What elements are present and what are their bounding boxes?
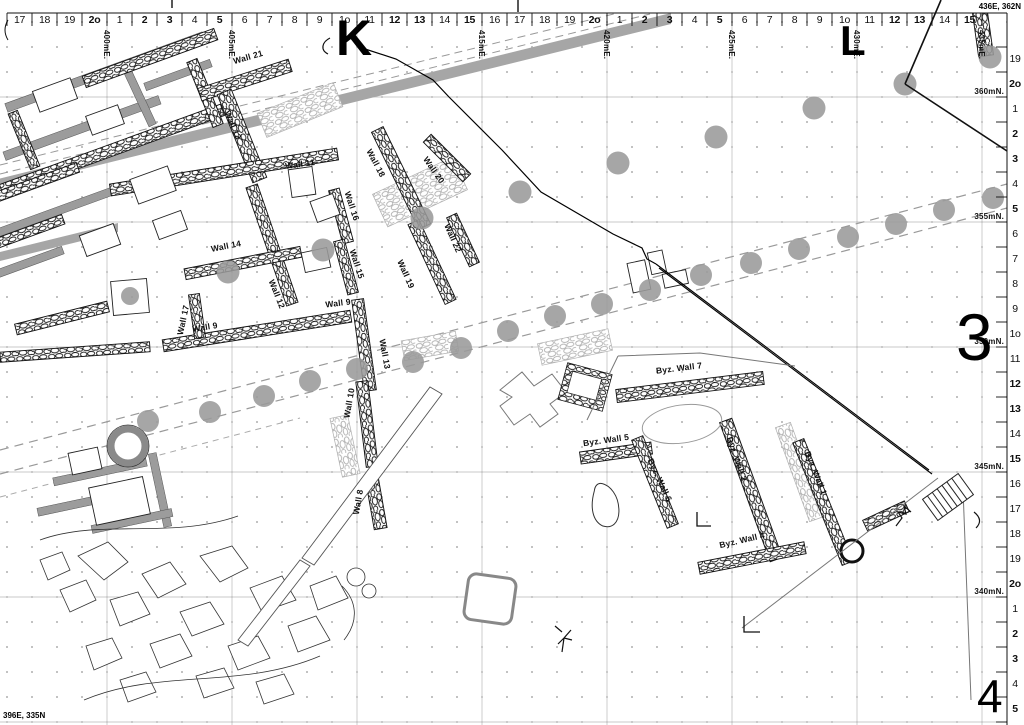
ruler-cell: 2 [132,14,157,26]
ruler-cell: 13 [907,14,932,26]
ruler-cell: 18 [32,14,57,26]
ruler-row: 4 [1007,678,1023,690]
northing-label: 345mN. [958,462,1004,471]
ruler-cell: 17 [7,14,32,26]
ruler-cell: 9 [307,14,332,26]
easting-label: 420mE. [602,30,611,59]
ruler-row: 13 [1007,403,1023,415]
ruler-cell: 3 [657,14,682,26]
ruler-row: 3 [1007,153,1023,165]
grid-square-letter: K [336,16,372,61]
ruler-cell: 18 [532,14,557,26]
easting-label: 425mE. [727,30,736,59]
northing-label: 340mN. [958,587,1004,596]
ruler-row: 17 [1007,503,1023,515]
ruler-row: 5 [1007,703,1023,715]
ruler-cell: 12 [382,14,407,26]
ruler-row: 8 [1007,278,1023,290]
grid-square-letter: L [840,22,866,60]
ruler-row: 1o [1007,328,1023,340]
ruler-cell: 7 [757,14,782,26]
ruler-row: 3 [1007,653,1023,665]
site-plan-sheet: 1718192o1234567891o1112131415161718192o1… [0,0,1024,725]
ruler-row: 2o [1007,78,1023,90]
northing-label: 355mN. [958,212,1004,221]
ruler-cell: 14 [432,14,457,26]
ruler-row: 2 [1007,128,1023,140]
ruler-row: 1 [1007,603,1023,615]
ruler-chrome [0,0,1024,725]
ruler-cell: 14 [932,14,957,26]
ruler-row: 19 [1007,553,1023,565]
easting-label: 435mE. [977,30,986,59]
ruler-cell: 17 [507,14,532,26]
easting-label: 400mE. [102,30,111,59]
ruler-cell: 2o [582,14,607,26]
ruler-row: 9 [1007,303,1023,315]
ruler-row: 7 [1007,253,1023,265]
ruler-cell: 7 [257,14,282,26]
ruler-cell: 12 [882,14,907,26]
ruler-row: 11 [1007,353,1023,365]
ruler-row: 12 [1007,378,1023,390]
ruler-cell: 15 [457,14,482,26]
ruler-row: 16 [1007,478,1023,490]
easting-label: 415mE. [477,30,486,59]
ruler-row: 14 [1007,428,1023,440]
ruler-cell: 6 [232,14,257,26]
ruler-row: 2 [1007,628,1023,640]
ruler-row: 1 [1007,103,1023,115]
ruler-cell: 1 [607,14,632,26]
zone-number: 3 [956,308,991,367]
ruler-cell: 1 [107,14,132,26]
ruler-cell: 2o [82,14,107,26]
ruler-cell: 13 [407,14,432,26]
ruler-row: 18 [1007,528,1023,540]
ruler-row: 15 [1007,453,1023,465]
ruler-cell: 6 [732,14,757,26]
ruler-cell: 4 [682,14,707,26]
ruler-row: 2o [1007,578,1023,590]
corner-coordinate-ne: 436E, 362N [979,2,1021,11]
corner-coordinate-sw: 396E, 335N [3,711,45,720]
zone-number: 4 [977,676,1001,717]
ruler-cell: 2 [632,14,657,26]
ruler-cell: 16 [482,14,507,26]
ruler-cell: 5 [707,14,732,26]
ruler-cell: 4 [182,14,207,26]
ruler-row: 4 [1007,178,1023,190]
ruler-cell: 19 [57,14,82,26]
ruler-row: 19 [1007,53,1023,65]
ruler-cell: 19 [557,14,582,26]
ruler-row: 6 [1007,228,1023,240]
ruler-cell: 9 [807,14,832,26]
ruler-cell: 8 [282,14,307,26]
northing-label: 360mN. [958,87,1004,96]
ruler-cell: 8 [782,14,807,26]
ruler-cell: 3 [157,14,182,26]
ruler-cell: 5 [207,14,232,26]
ruler-cell: 15 [957,14,982,26]
ruler-row: 5 [1007,203,1023,215]
